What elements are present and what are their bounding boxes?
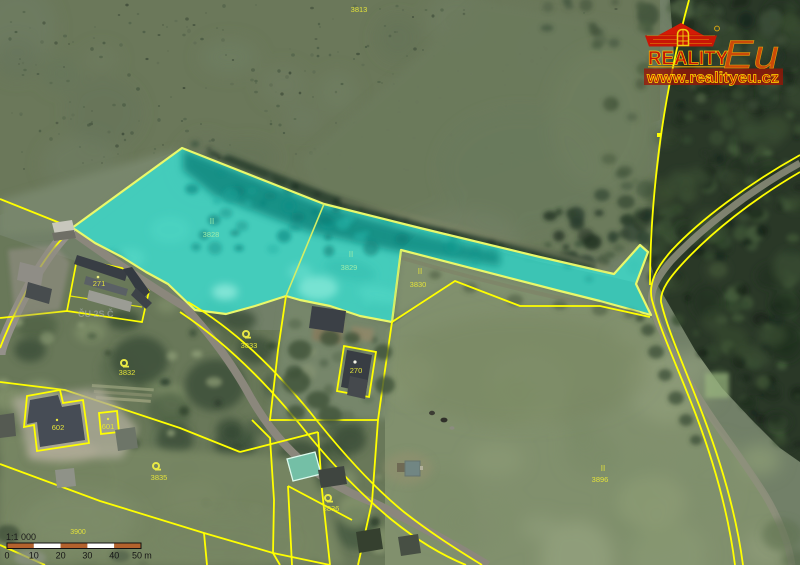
svg-text:3832: 3832 [119, 368, 136, 377]
svg-text:II: II [210, 217, 214, 226]
svg-text:3828: 3828 [203, 230, 220, 239]
svg-text:50: 50 [132, 551, 142, 561]
svg-text:REALITY: REALITY [648, 48, 728, 70]
svg-text:270: 270 [350, 366, 363, 375]
svg-text:3813: 3813 [351, 5, 368, 14]
svg-text:40: 40 [109, 551, 119, 561]
svg-text:3896: 3896 [592, 475, 609, 484]
svg-text:10: 10 [29, 551, 39, 561]
svg-text:3835: 3835 [151, 473, 168, 482]
svg-text:3829: 3829 [341, 263, 358, 272]
svg-text:602: 602 [52, 423, 65, 432]
svg-text:II: II [601, 464, 605, 473]
svg-text:30: 30 [82, 551, 92, 561]
svg-text:601: 601 [102, 422, 115, 431]
svg-text:ČU 2S Č: ČU 2S Č [78, 308, 114, 319]
svg-text:1:1 000: 1:1 000 [6, 532, 36, 542]
svg-text:3830: 3830 [410, 280, 427, 289]
svg-text:20: 20 [56, 551, 66, 561]
svg-text:II: II [349, 250, 353, 259]
svg-text:0: 0 [4, 551, 9, 561]
svg-text:3833: 3833 [241, 341, 258, 350]
svg-text:3836: 3836 [323, 504, 340, 513]
svg-text:271: 271 [93, 279, 106, 288]
svg-text:3900: 3900 [70, 529, 86, 536]
svg-text:II: II [418, 267, 422, 276]
svg-text:www.realityeu.cz: www.realityeu.cz [646, 70, 779, 87]
svg-text:m: m [144, 551, 152, 561]
